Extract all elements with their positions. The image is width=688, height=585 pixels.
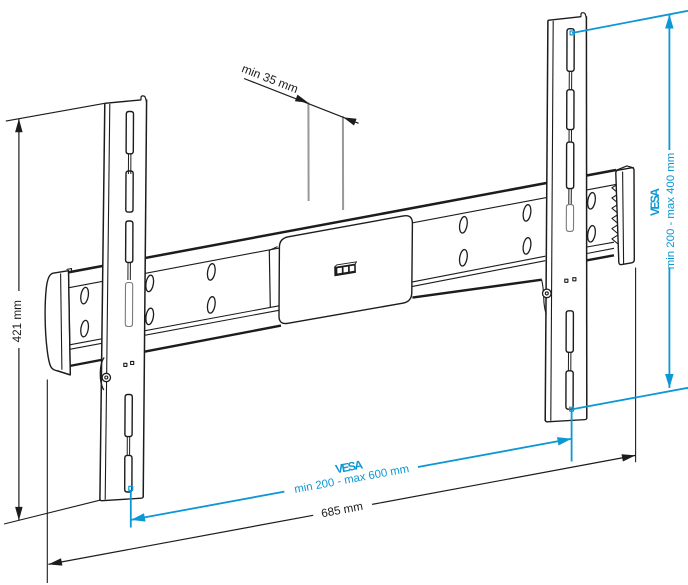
- svg-text:min 35 mm: min 35 mm: [240, 61, 300, 96]
- svg-text:min 200 - max 400 mm: min 200 - max 400 mm: [665, 153, 677, 269]
- svg-text:685 mm: 685 mm: [320, 500, 364, 520]
- svg-text:VESA: VESA: [648, 188, 662, 216]
- svg-text:421 mm: 421 mm: [11, 300, 24, 342]
